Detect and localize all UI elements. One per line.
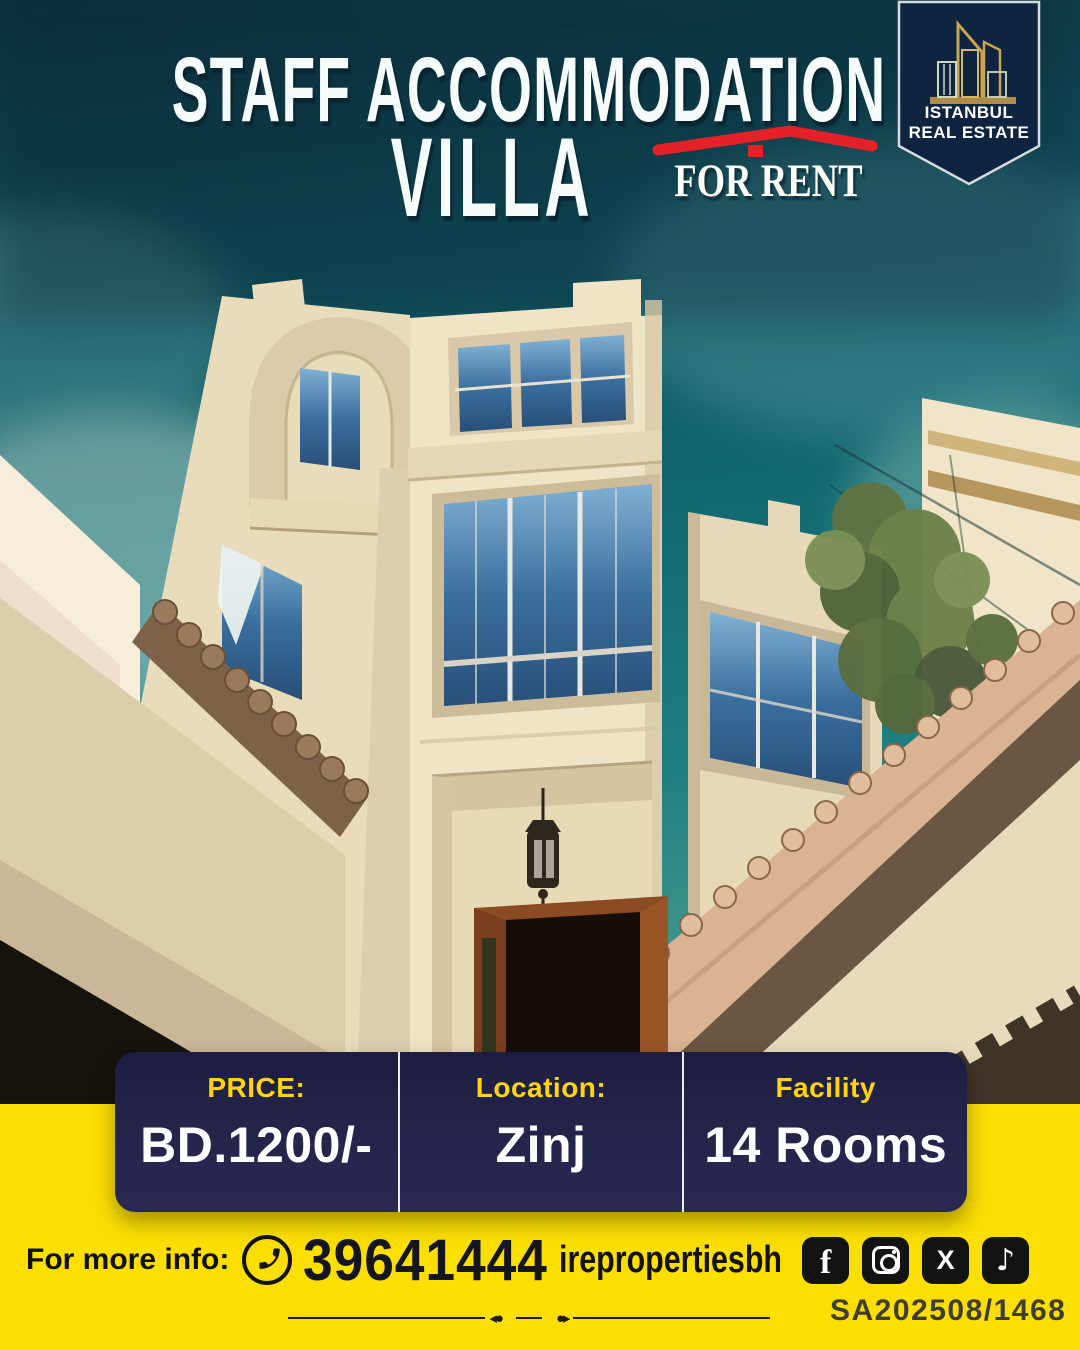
poster-title-line2: VILLA [391, 122, 520, 234]
ornamental-divider: ◂● ●▸ [288, 1310, 770, 1326]
facebook-icon[interactable]: f [802, 1237, 849, 1284]
price-column: PRICE: BD.1200/- [115, 1052, 398, 1212]
listing-reference: SA202508/1468 [830, 1294, 1066, 1328]
price-label: PRICE: [207, 1072, 305, 1104]
price-value: BD.1200/- [140, 1116, 372, 1174]
facility-value: 14 Rooms [704, 1116, 947, 1174]
tiktok-icon[interactable]: ♪ [982, 1237, 1029, 1284]
brand-badge: ISTANBUL REAL ESTATE [893, 0, 1045, 192]
social-handle[interactable]: irepropertiesbh [559, 1239, 782, 1282]
x-icon[interactable]: X [922, 1237, 969, 1284]
phone-icon [239, 1232, 295, 1288]
contact-row: For more info: 39641444 irepropertiesbh … [26, 1228, 1074, 1292]
facility-column: Facility 14 Rooms [682, 1052, 967, 1212]
brand-badge-shape [893, 0, 1045, 192]
more-info-label: For more info: [26, 1243, 229, 1277]
for-rent-label: FOR RENT [674, 158, 846, 205]
social-icons: f X ♪ [802, 1237, 1029, 1284]
brand-name-line2: REAL ESTATE [893, 123, 1045, 143]
brand-name-line1: ISTANBUL [893, 103, 1045, 123]
info-bar: PRICE: BD.1200/- Location: Zinj Facility… [115, 1052, 967, 1212]
location-label: Location: [476, 1072, 607, 1104]
poster: STAFF ACCOMMODATION VILLA FOR RENT ISTAN… [0, 0, 1080, 1350]
instagram-icon[interactable] [862, 1237, 909, 1284]
phone-number[interactable]: 39641444 [303, 1227, 548, 1294]
location-column: Location: Zinj [398, 1052, 683, 1212]
facility-label: Facility [775, 1072, 875, 1104]
location-value: Zinj [496, 1116, 587, 1174]
